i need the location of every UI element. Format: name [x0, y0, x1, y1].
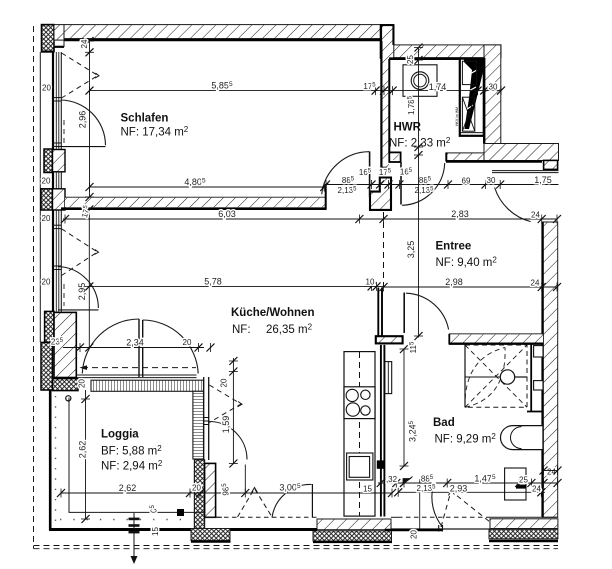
svg-text:Bad: Bad — [433, 417, 455, 429]
svg-text:24: 24 — [547, 467, 556, 476]
svg-text:Küche/Wohnen: Küche/Wohnen — [231, 307, 314, 319]
svg-text:3,25: 3,25 — [406, 241, 416, 259]
svg-text:NF:: NF: — [232, 324, 251, 336]
svg-text:Loggia: Loggia — [101, 429, 139, 441]
svg-text:20: 20 — [42, 278, 51, 287]
svg-text:20: 20 — [410, 530, 419, 539]
svg-text:20: 20 — [78, 379, 87, 388]
svg-text:BF: 5,88 m2: BF: 5,88 m2 — [101, 444, 162, 458]
svg-text:NF: 9,40 m2: NF: 9,40 m2 — [436, 256, 498, 270]
svg-text:NF: 2,94 m2: NF: 2,94 m2 — [101, 459, 163, 473]
svg-text:6,03: 6,03 — [218, 209, 236, 219]
svg-text:26,35 m2: 26,35 m2 — [266, 323, 313, 337]
svg-text:2,83: 2,83 — [451, 209, 469, 219]
svg-text:2,93: 2,93 — [450, 483, 468, 493]
svg-text:24: 24 — [80, 39, 89, 48]
svg-text:NF: 9,29 m2: NF: 9,29 m2 — [435, 432, 497, 446]
svg-text:2,62: 2,62 — [78, 441, 88, 459]
svg-text:20: 20 — [42, 177, 51, 186]
svg-text:Schlafen: Schlafen — [121, 113, 169, 125]
svg-text:20: 20 — [220, 378, 229, 387]
svg-text:20: 20 — [192, 484, 201, 493]
svg-text:HKV im WM: HKV im WM — [455, 107, 459, 126]
svg-text:10: 10 — [366, 278, 375, 287]
svg-text:25: 25 — [406, 55, 415, 64]
svg-text:,32: ,32 — [386, 475, 398, 484]
svg-text:5,78: 5,78 — [204, 276, 222, 286]
svg-text:24: 24 — [532, 484, 541, 493]
svg-text:20: 20 — [183, 338, 192, 347]
svg-text:20: 20 — [42, 84, 51, 93]
svg-text:2,62: 2,62 — [119, 483, 137, 493]
svg-text:20: 20 — [42, 214, 51, 223]
svg-text:NF: 2,33 m2: NF: 2,33 m2 — [389, 136, 451, 150]
svg-text:2,95: 2,95 — [77, 283, 87, 301]
svg-text:15: 15 — [363, 484, 372, 493]
svg-text:69: 69 — [462, 176, 471, 185]
svg-text:1,59: 1,59 — [221, 416, 231, 434]
svg-text:25: 25 — [519, 475, 528, 484]
svg-text:1,74: 1,74 — [429, 82, 447, 92]
svg-text:30: 30 — [487, 176, 496, 185]
svg-text:HWR: HWR — [394, 122, 422, 134]
svg-text:2,96: 2,96 — [78, 111, 88, 129]
svg-text:24: 24 — [531, 210, 540, 219]
svg-text:1,75: 1,75 — [534, 175, 552, 185]
svg-text:30: 30 — [489, 82, 498, 91]
svg-text:2,98: 2,98 — [445, 277, 463, 287]
svg-text:24: 24 — [531, 278, 540, 287]
svg-text:NF: 17,34 m2: NF: 17,34 m2 — [121, 125, 189, 139]
svg-text:2,34: 2,34 — [126, 337, 144, 347]
svg-text:15: 15 — [151, 527, 160, 536]
svg-text:Entree: Entree — [436, 241, 472, 253]
